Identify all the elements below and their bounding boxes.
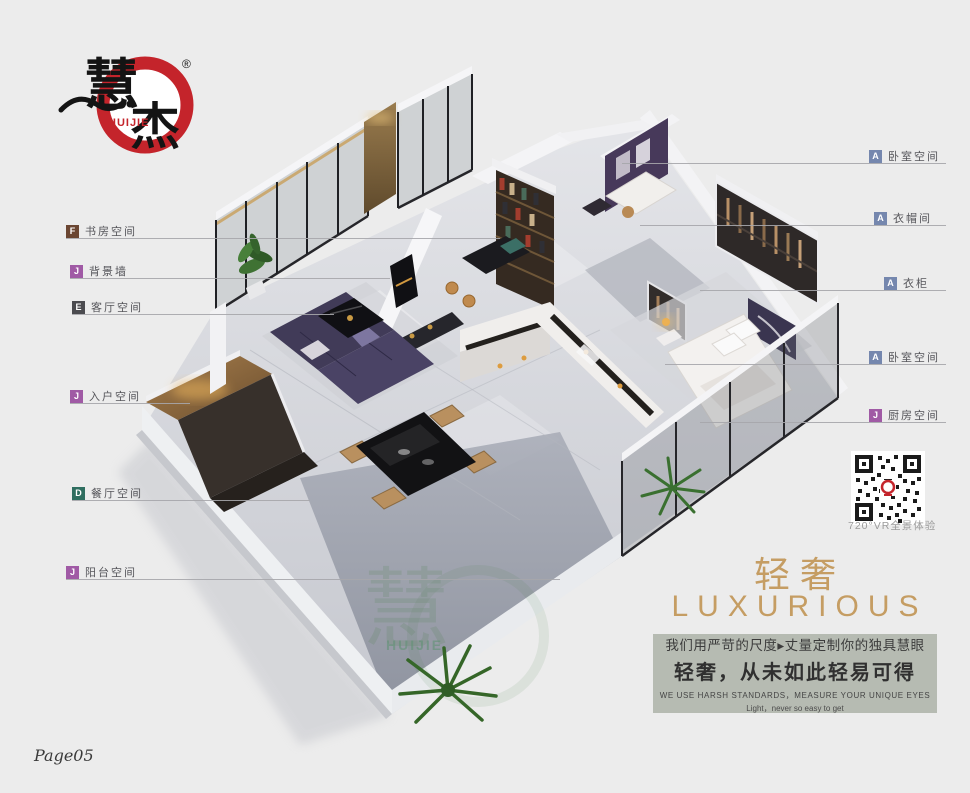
slogan-line-2: 轻奢，从未如此轻易可得 [653, 656, 937, 685]
callout-label: 入户空间 [89, 388, 141, 404]
watermark-text: HUIJIE [386, 637, 443, 653]
qr-caption: 720°VR全景体验 [848, 518, 958, 533]
brand-logo: 慧 杰 HUIJIE ® [58, 42, 208, 167]
callout-badge: E [72, 301, 85, 314]
callout-label: 卧室空间 [888, 148, 940, 164]
callout-badge: J [869, 409, 882, 422]
brochure-page: 慧 HUIJIE 慧 杰 HUIJIE ® F 书房空间 J 背景墙 E 客厅空… [0, 0, 970, 793]
callout-cloakroom: A 衣帽间 [874, 211, 932, 225]
callout-label: 卧室空间 [888, 349, 940, 365]
page-number: Page05 [34, 746, 94, 765]
callout-bedroom-2: A 卧室空间 [869, 350, 940, 364]
callout-feature-wall: J 背景墙 [70, 264, 128, 278]
qr-code [851, 451, 925, 525]
callout-badge: J [70, 265, 83, 278]
callout-label: 餐厅空间 [91, 485, 143, 501]
slogan-line-1: 我们用严苛的尺度▸丈量定制你的独具慧眼 [653, 634, 937, 654]
slogan-line-3: WE USE HARSH STANDARDS，MEASURE YOUR UNIQ… [653, 690, 937, 701]
callout-study: F 书房空间 [66, 224, 137, 238]
callout-balcony: J 阳台空间 [66, 565, 137, 579]
callout-wardrobe: A 衣柜 [884, 276, 929, 290]
callout-bedroom-1: A 卧室空间 [869, 149, 940, 163]
callout-label: 背景墙 [89, 263, 128, 279]
hall-glass-wall [398, 66, 472, 208]
slogan-line-4: Light，never so easy to get [653, 703, 937, 714]
bronze-pillar [364, 102, 396, 214]
callout-label: 衣帽间 [893, 210, 932, 226]
callout-label: 书房空间 [85, 223, 137, 239]
callout-living: E 客厅空间 [72, 300, 143, 314]
callout-label: 衣柜 [903, 275, 929, 291]
registered-mark: ® [182, 57, 191, 71]
callout-label: 厨房空间 [888, 407, 940, 423]
callout-badge: A [869, 150, 882, 163]
callout-entry: J 入户空间 [70, 389, 141, 403]
leader-line [66, 579, 560, 580]
callout-badge: F [66, 225, 79, 238]
callout-badge: D [72, 487, 85, 500]
callout-badge: A [884, 277, 897, 290]
callout-badge: A [869, 351, 882, 364]
callout-badge: A [874, 212, 887, 225]
tagline-en: LUXURIOUS [653, 590, 937, 624]
logo-en: HUIJIE [108, 117, 149, 129]
callout-dining: D 餐厅空间 [72, 486, 143, 500]
slogan-box: 我们用严苛的尺度▸丈量定制你的独具慧眼 轻奢，从未如此轻易可得 WE USE H… [653, 634, 937, 713]
logo-dot [127, 101, 134, 108]
callout-badge: J [66, 566, 79, 579]
callout-badge: J [70, 390, 83, 403]
callout-label: 阳台空间 [85, 564, 137, 580]
callout-kitchen: J 厨房空间 [869, 408, 940, 422]
callout-label: 客厅空间 [91, 299, 143, 315]
